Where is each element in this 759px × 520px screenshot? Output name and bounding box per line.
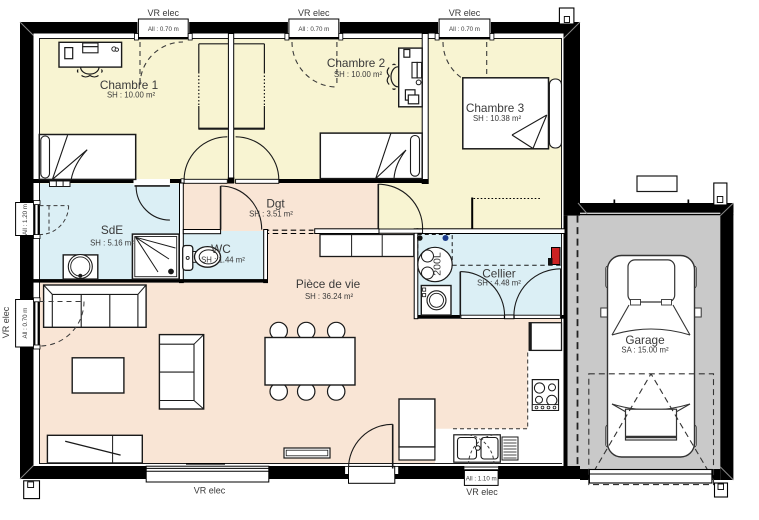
svg-text:All : 0.70 m: All : 0.70 m (449, 26, 480, 33)
svg-text:VR elec: VR elec (298, 8, 330, 18)
svg-text:SH : 1.44 m²: SH : 1.44 m² (201, 256, 245, 265)
svg-text:Dgt: Dgt (266, 197, 285, 211)
svg-text:VR elec: VR elec (148, 8, 180, 18)
svg-text:All : 0.70 m: All : 0.70 m (148, 26, 179, 33)
svg-text:SH : 5.16 m²: SH : 5.16 m² (90, 239, 134, 248)
svg-text:Chambre 2: Chambre 2 (327, 56, 385, 70)
svg-text:SH : 10.38 m²: SH : 10.38 m² (473, 114, 522, 123)
svg-text:Pièce de vie: Pièce de vie (296, 277, 361, 291)
svg-text:SdE: SdE (101, 223, 123, 237)
svg-text:VR elec: VR elec (466, 487, 498, 497)
svg-text:VR elec: VR elec (194, 486, 226, 496)
svg-text:SH : 3.51 m²: SH : 3.51 m² (249, 210, 293, 219)
svg-text:SA : 15.00 m²: SA : 15.00 m² (621, 346, 669, 355)
svg-text:SH : 36.24 m²: SH : 36.24 m² (305, 292, 354, 301)
svg-text:SH : 4.48 m²: SH : 4.48 m² (477, 279, 521, 288)
svg-text:VR elec: VR elec (449, 8, 481, 18)
svg-text:All : 0.70 m: All : 0.70 m (22, 308, 29, 339)
svg-text:All : 1.20 m: All : 1.20 m (22, 204, 29, 235)
svg-text:SH : 10.00 m²: SH : 10.00 m² (107, 91, 156, 100)
svg-text:VR elec: VR elec (1, 306, 11, 338)
svg-text:All : 0.70 m: All : 0.70 m (298, 26, 329, 33)
svg-text:WC: WC (211, 242, 231, 256)
svg-text:SH : 10.00 m²: SH : 10.00 m² (334, 70, 383, 79)
svg-text:200L: 200L (432, 252, 444, 276)
svg-text:All : 1.10 m: All : 1.10 m (466, 476, 497, 483)
svg-text:Chambre 3: Chambre 3 (466, 101, 525, 115)
